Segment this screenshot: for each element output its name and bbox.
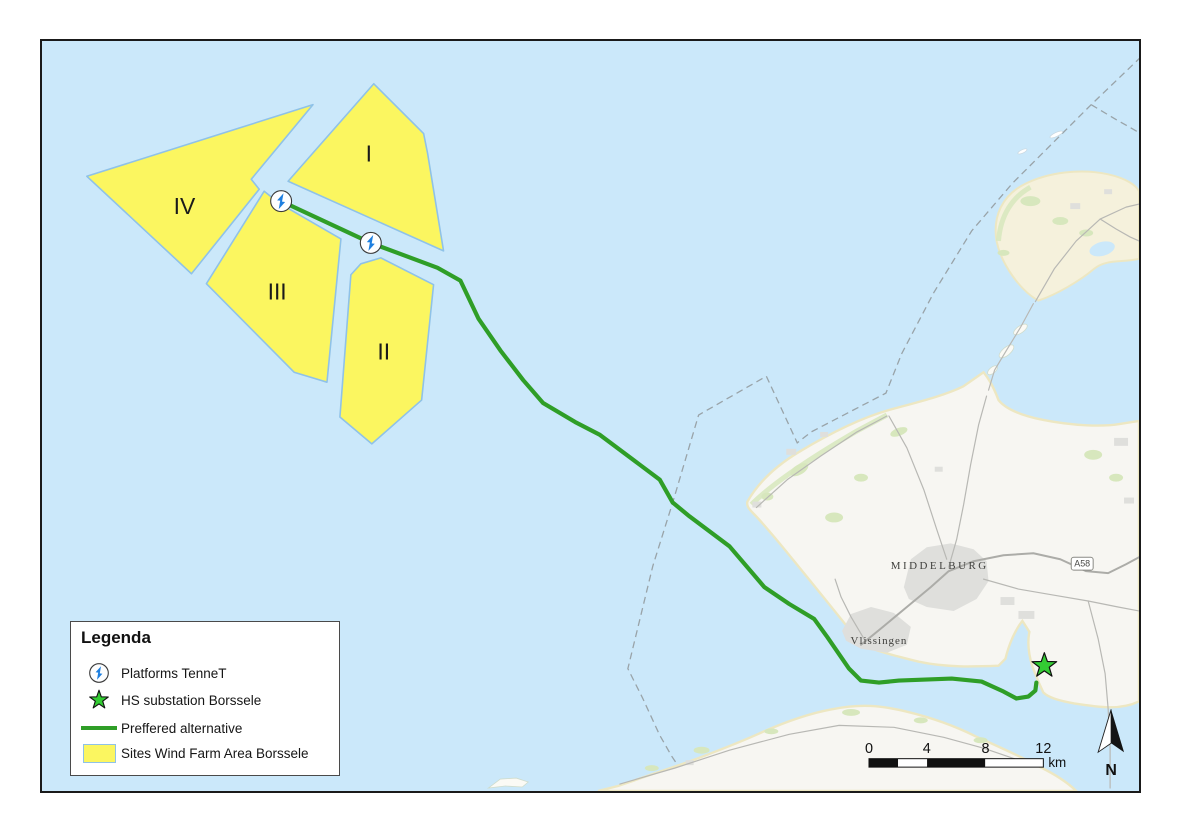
legend-item-sites: Sites Wind Farm Area Borssele xyxy=(77,740,309,766)
label-middelburg: MIDDELBURG xyxy=(891,560,989,572)
svg-text:A58: A58 xyxy=(1074,559,1090,569)
legend-title: Legenda xyxy=(81,628,151,648)
area-swatch-icon xyxy=(83,744,116,763)
figure-page: MIDDELBURG Vlissingen A58 I II III IV xyxy=(0,0,1180,834)
svg-text:4: 4 xyxy=(923,741,931,757)
legend-item-substation: HS substation Borssele xyxy=(77,687,261,713)
platform-tennet-1 xyxy=(271,191,292,212)
legend-label-route: Preffered alternative xyxy=(121,721,242,736)
legend: Legenda Platforms TenneT HS substation B… xyxy=(70,621,340,776)
star-icon xyxy=(87,688,111,712)
svg-text:8: 8 xyxy=(982,741,990,757)
legend-label-platforms: Platforms TenneT xyxy=(121,666,227,681)
legend-label-sites: Sites Wind Farm Area Borssele xyxy=(121,746,309,761)
area-label-ii: II xyxy=(377,338,390,364)
legend-item-platforms: Platforms TenneT xyxy=(77,660,227,686)
route-line-icon xyxy=(81,726,117,730)
area-label-iii: III xyxy=(268,279,287,305)
legend-item-route: Preffered alternative xyxy=(77,715,242,741)
area-label-iv: IV xyxy=(174,193,196,219)
legend-label-substation: HS substation Borssele xyxy=(121,693,261,708)
a58-badge: A58 xyxy=(1071,557,1093,570)
svg-text:km: km xyxy=(1048,755,1066,770)
platform-tennet-2 xyxy=(360,232,381,253)
label-vlissingen: Vlissingen xyxy=(851,635,908,647)
svg-text:0: 0 xyxy=(865,741,873,757)
area-label-i: I xyxy=(366,140,372,166)
platform-icon xyxy=(88,662,110,684)
svg-text:N: N xyxy=(1105,762,1117,779)
